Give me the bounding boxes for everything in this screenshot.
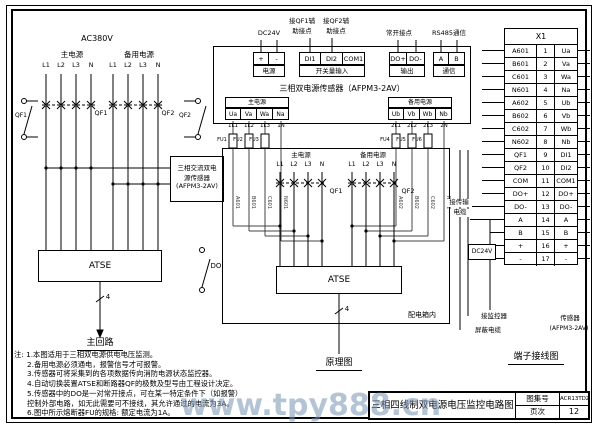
table-row: B15B	[505, 227, 577, 240]
terminal-cell: Va	[555, 58, 577, 70]
sensor-main-group-label: 主电源	[225, 97, 289, 108]
note-line: 2.备用电源必须通电，报警信号才可报警。	[14, 360, 214, 370]
terminal-cell: Wa	[555, 71, 577, 83]
qf1-aux-annotation-line2: 助接点	[288, 28, 316, 36]
inner-qf2-label: QF2	[398, 188, 418, 196]
terminal-di2: DI2	[321, 52, 343, 65]
table-row: N6028Nb	[505, 136, 577, 149]
sensor-ref-line2: (AFPM3-2AV)	[538, 325, 600, 332]
table-row: +16+	[505, 240, 577, 253]
terminal-ua: Ua	[225, 108, 241, 120]
terminal-cell: 14	[537, 214, 555, 226]
sensor-tap-lines	[46, 168, 170, 184]
terminal-cell: DO-	[505, 201, 537, 213]
inner-phase-l1: L1	[274, 161, 286, 168]
terminal-cell: 10	[537, 162, 555, 174]
terminal-cell: 12	[537, 188, 555, 200]
terminal-cell: 6	[537, 110, 555, 122]
terminal-com1: COM1	[343, 52, 365, 65]
shield-cable-label: 屏蔽电缆	[470, 327, 506, 335]
phase-label-l3: L3	[69, 62, 83, 70]
fuse-label: FU5	[395, 137, 407, 143]
terminal-cell: 17	[537, 253, 555, 266]
inner-phase-l3: L3	[302, 161, 314, 168]
junction-dots	[44, 166, 159, 185]
comm-terminals: A B	[433, 52, 465, 65]
phase-label-l2: L2	[54, 62, 68, 70]
terminal-cell: +	[505, 240, 537, 252]
terminal-cell: Wb	[555, 123, 577, 135]
qf1-aux-annotation-line1: 接QF1辅	[286, 18, 318, 26]
table-row: QF19DI1	[505, 149, 577, 162]
inner-main-label: 主电源	[271, 152, 331, 160]
table-row: C6013Wa	[505, 71, 577, 84]
breaker-poles	[42, 101, 162, 109]
terminal-cell: 2	[537, 58, 555, 70]
terminal-va: Va	[241, 108, 257, 120]
left-power-wires	[46, 74, 158, 250]
sensor-main-terminals: Ua Va Wa Na	[225, 108, 289, 120]
qf2-aux-annotation-line2: 助接点	[322, 28, 350, 36]
inner-atse-box: ATSE	[276, 266, 402, 294]
terminal-minus: -	[269, 52, 285, 65]
di-terminals: DI1 DI2 COM1	[299, 52, 365, 65]
terminal-na: Na	[273, 108, 289, 120]
terminal-cell: Ua	[555, 45, 577, 57]
inner-qf1-label: QF1	[326, 188, 346, 196]
terminal-cell: N602	[505, 136, 537, 148]
cable-annotation-line2: 电缆	[450, 209, 470, 217]
distribution-box-label: 配电箱内	[396, 311, 448, 319]
sensor-ref-line1: 传感器	[548, 315, 592, 323]
terminal-cell: 9	[537, 149, 555, 161]
ac-dual-power-sensor-box: 三相交流双电 源传感器 (AFPM3-2AV)	[170, 156, 224, 202]
inner-phase-l2: L2	[288, 161, 300, 168]
distribution-box	[222, 148, 450, 324]
voltage-label: AC380V	[62, 34, 132, 44]
sensor-backup-terminals: Ub Vb Wb Nb	[388, 108, 452, 120]
terminal-wa: Wa	[257, 108, 273, 120]
terminal-cell: 7	[537, 123, 555, 135]
inner-atse-label: ATSE	[328, 275, 350, 285]
wire-tag: 1N	[272, 123, 290, 130]
terminal-cell: DO-	[555, 201, 577, 213]
branch-count: 4	[103, 293, 113, 301]
table-row: N6014Na	[505, 84, 577, 97]
terminal-cell: 16	[537, 240, 555, 252]
drawing-sheet: AC380V 主电源 备用电源 L1 L2 L3 N L1 L2 L3 N QF…	[0, 0, 600, 429]
terminal-cell: C602	[505, 123, 537, 135]
rs485-down-line	[460, 150, 490, 330]
terminal-cell: 5	[537, 97, 555, 109]
terminal-cell: DO+	[505, 188, 537, 200]
terminal-cell: Ub	[555, 97, 577, 109]
note-line: 注: 1.本图适用于三相双电源供电电压监测。	[14, 350, 214, 360]
power-terminals: + -	[253, 52, 285, 65]
inner-phase-l2: L2	[360, 161, 372, 168]
terminal-cell: COM	[505, 175, 537, 187]
atse-label: ATSE	[89, 261, 111, 271]
dc24v-annotation: DC24V	[250, 30, 288, 38]
fuse-label: FU6	[411, 137, 423, 143]
terminal-a: A	[433, 52, 449, 65]
page-number-value: 12	[560, 406, 588, 419]
terminal-cell: COM1	[555, 175, 577, 187]
atse-box: ATSE	[38, 250, 162, 282]
phase-label-l1: L1	[39, 62, 53, 70]
to-monitor-label: 接监控器	[476, 313, 512, 321]
table-row: A14A	[505, 214, 577, 227]
sensor-box-line2: 源传感器	[171, 172, 223, 182]
terminal-strip-title: X1	[505, 29, 577, 45]
table-row: DO-13DO-	[505, 201, 577, 214]
terminal-nb: Nb	[436, 108, 452, 120]
terminal-cell: 11	[537, 175, 555, 187]
watermark: www.tpy888.cn	[180, 388, 441, 423]
terminal-cell: 8	[537, 136, 555, 148]
inner-phase-n: N	[316, 161, 328, 168]
do-terminals: DO+ DO-	[389, 52, 425, 65]
sensor-backup-group-label: 备用电源	[388, 97, 452, 108]
fuse-label: FU4	[379, 137, 391, 143]
terminal-cell: A601	[505, 45, 537, 57]
page-number-label: 页次	[516, 406, 560, 419]
terminal-cell: DI2	[555, 162, 577, 174]
qf2-aux-annotation-line1: 接QF2辅	[320, 18, 352, 26]
phase-label-l3: L3	[136, 62, 150, 70]
main-power-label: 主电源	[42, 50, 102, 59]
inner-phase-n: N	[388, 161, 400, 168]
terminal-do-plus: DO+	[389, 52, 407, 65]
phase-label-l1: L1	[106, 62, 120, 70]
dc24v-source-box: DC24V	[468, 244, 496, 260]
backup-power-label: 备用电源	[108, 50, 170, 59]
schematic-caption: 原理图	[316, 358, 362, 371]
terminal-di1: DI1	[299, 52, 321, 65]
phase-label-n: N	[151, 62, 165, 70]
table-row: QF210DI2	[505, 162, 577, 175]
do-group-label: 输出	[389, 65, 425, 77]
table-row: A6025Ub	[505, 97, 577, 110]
table-row: -17-	[505, 253, 577, 266]
terminal-cell: QF2	[505, 162, 537, 174]
fuse-label: FU1	[216, 137, 228, 143]
terminal-cell: A602	[505, 97, 537, 109]
terminal-cell: B	[505, 227, 537, 239]
terminal-cell: -	[505, 253, 537, 266]
terminal-cell: Na	[555, 84, 577, 96]
main-circuit-caption: 主回路	[77, 338, 123, 351]
inner-phase-l3: L3	[374, 161, 386, 168]
terminal-cell: 15	[537, 227, 555, 239]
terminal-b: B	[449, 52, 465, 65]
comm-group-label: 通信	[433, 65, 465, 77]
sensor-box-line1: 三相交流双电	[171, 162, 223, 172]
table-row: A6011Ua	[505, 45, 577, 58]
cable-annotation-line1: 接传输	[446, 199, 472, 207]
terminal-wiring-caption: 端子接线图	[508, 352, 564, 365]
terminal-cell: B	[555, 227, 577, 239]
terminal-ub: Ub	[388, 108, 404, 120]
terminal-cell: C601	[505, 71, 537, 83]
qf2-aux-label: QF2	[175, 112, 195, 119]
terminal-vb: Vb	[404, 108, 420, 120]
terminal-cell: +	[555, 240, 577, 252]
power-group-label: 电源	[253, 65, 285, 77]
table-row: COM11COM1	[505, 175, 577, 188]
terminal-cell: DO+	[555, 188, 577, 200]
atlas-number-label: 图集号	[516, 393, 560, 406]
terminal-cell: 1	[537, 45, 555, 57]
terminal-cell: Vb	[555, 110, 577, 122]
wire-tag: 2N	[435, 123, 453, 130]
terminal-wb: Wb	[420, 108, 436, 120]
terminal-cell: DI1	[555, 149, 577, 161]
phase-label-l2: L2	[121, 62, 135, 70]
inner-branch-count: 4	[342, 305, 352, 313]
inner-phase-l1: L1	[346, 161, 358, 168]
terminal-cell: Nb	[555, 136, 577, 148]
no-contact-annotation: 常开接点	[379, 30, 419, 38]
terminal-cell: A	[555, 214, 577, 226]
fuse-label: FU3	[248, 137, 260, 143]
inner-backup-label: 备用电源	[343, 152, 403, 160]
note-line: 3.传感器可将采集到的各项数据传向消防电源状态监控器。	[14, 369, 214, 379]
atlas-number-value: ACR13TDZ01	[560, 393, 588, 406]
terminal-cell: B602	[505, 110, 537, 122]
terminal-cell: 3	[537, 71, 555, 83]
table-row: C6027Wb	[505, 123, 577, 136]
table-row: DO+12DO+	[505, 188, 577, 201]
terminal-cell: 13	[537, 201, 555, 213]
sensor-box-line3: (AFPM3-2AV)	[171, 182, 223, 190]
terminal-do-minus: DO-	[407, 52, 425, 65]
terminal-cell: 4	[537, 84, 555, 96]
rs485-annotation: RS485通信	[421, 30, 477, 38]
terminal-cell: A	[505, 214, 537, 226]
terminal-cell: N601	[505, 84, 537, 96]
table-row: B6012Va	[505, 58, 577, 71]
breaker-qf1-label: QF1	[92, 110, 110, 118]
table-row: B6026Vb	[505, 110, 577, 123]
terminal-strip-x1: X1 A6011Ua B6012Va C6013Wa N6014Na A6025…	[504, 28, 578, 265]
terminal-cell: -	[555, 253, 577, 266]
terminal-cell: QF1	[505, 149, 537, 161]
terminal-cell: B601	[505, 58, 537, 70]
sensor-title: 三相双电源传感器（AFPM3-2AV）	[233, 84, 451, 94]
left-atse-output	[96, 282, 104, 337]
qf1-aux-label: QF1	[13, 112, 29, 119]
phase-label-n: N	[84, 62, 98, 70]
fuse-label: FU2	[232, 137, 244, 143]
di-group-label: 开关量输入	[299, 65, 365, 77]
terminal-plus: +	[253, 52, 269, 65]
